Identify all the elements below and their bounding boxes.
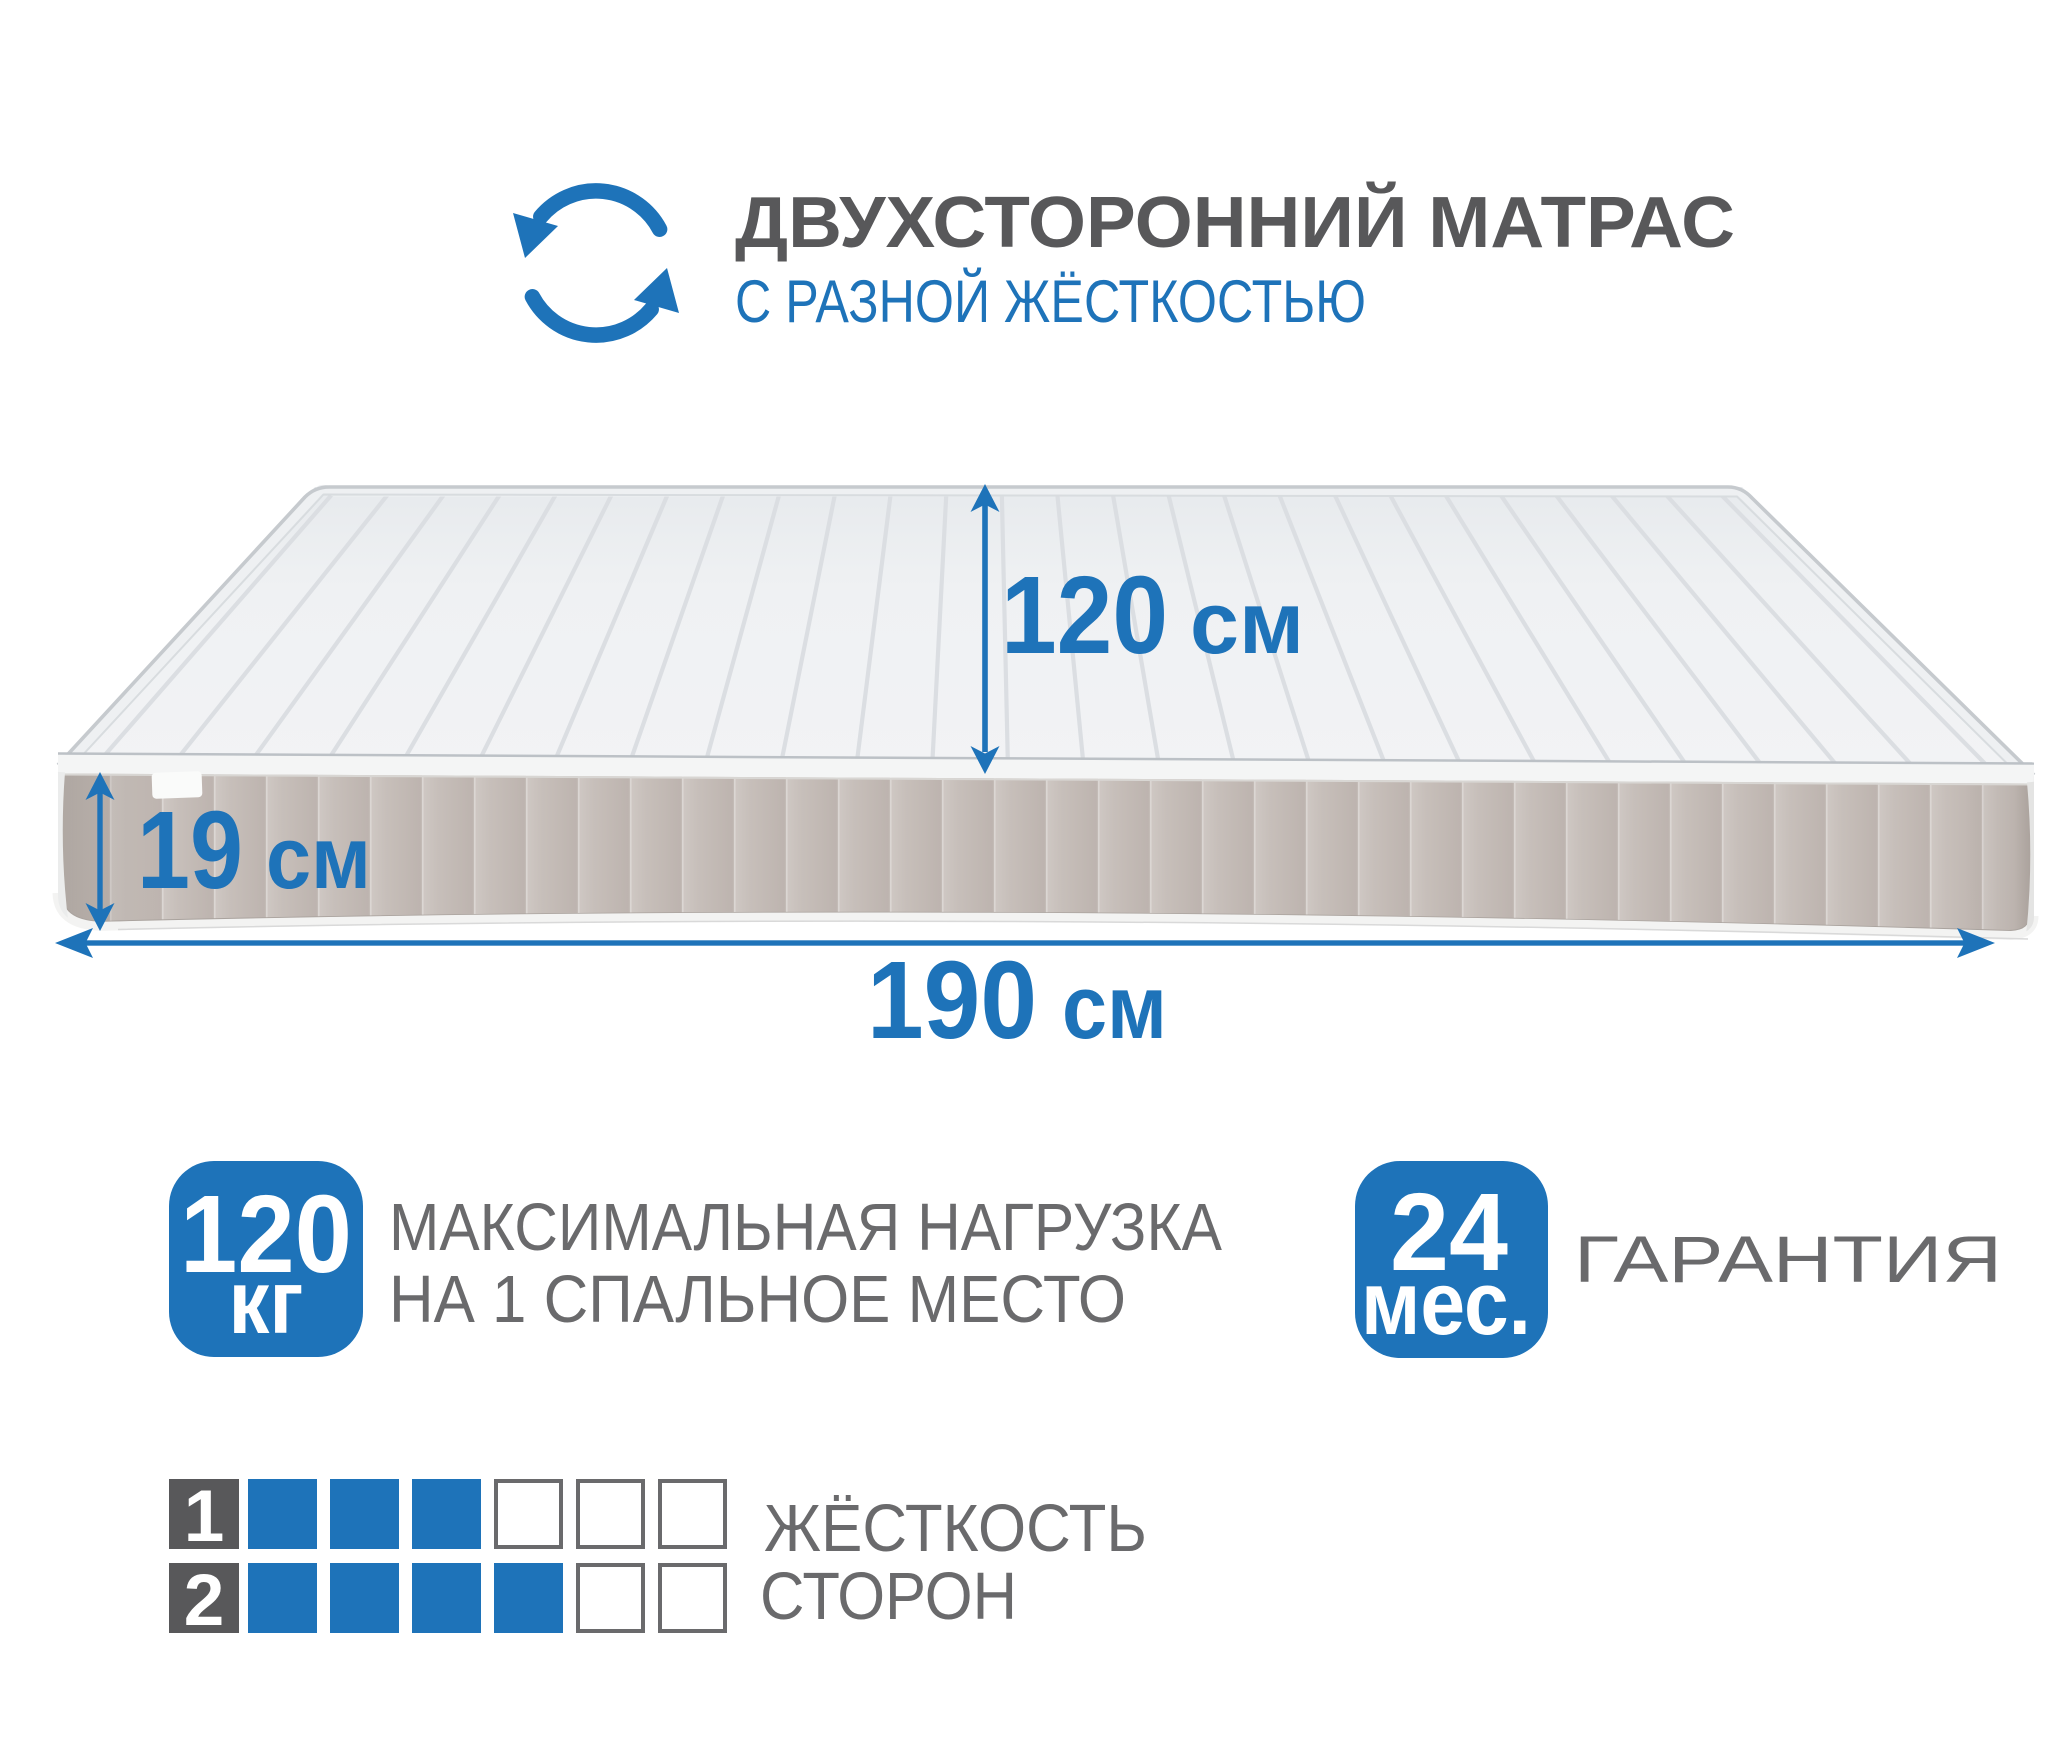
svg-text:С РАЗНОЙ ЖЁСТКОСТЬЮ: С РАЗНОЙ ЖЁСТКОСТЬЮ <box>735 268 1366 335</box>
svg-text:см: см <box>1062 958 1167 1058</box>
svg-text:см: см <box>266 808 371 907</box>
svg-text:см: см <box>1190 573 1304 672</box>
svg-text:кг: кг <box>229 1253 304 1353</box>
svg-text:19: 19 <box>137 789 243 912</box>
svg-text:ГАРАНТИЯ: ГАРАНТИЯ <box>1574 1222 2002 1296</box>
svg-text:СТОРОН: СТОРОН <box>760 1559 1017 1634</box>
svg-text:ЖЁСТКОСТЬ: ЖЁСТКОСТЬ <box>764 1491 1147 1566</box>
svg-text:НА 1 СПАЛЬНОЕ МЕСТО: НА 1 СПАЛЬНОЕ МЕСТО <box>389 1262 1126 1337</box>
svg-text:2: 2 <box>184 1560 225 1641</box>
svg-text:190: 190 <box>867 939 1037 1062</box>
svg-text:мес.: мес. <box>1361 1254 1531 1354</box>
svg-text:ДВУХСТОРОННИЙ МАТРАС: ДВУХСТОРОННИЙ МАТРАС <box>735 181 1735 263</box>
svg-text:МАКСИМАЛЬНАЯ НАГРУЗКА: МАКСИМАЛЬНАЯ НАГРУЗКА <box>389 1190 1222 1265</box>
svg-text:1: 1 <box>184 1476 225 1557</box>
svg-text:120: 120 <box>1001 554 1168 677</box>
